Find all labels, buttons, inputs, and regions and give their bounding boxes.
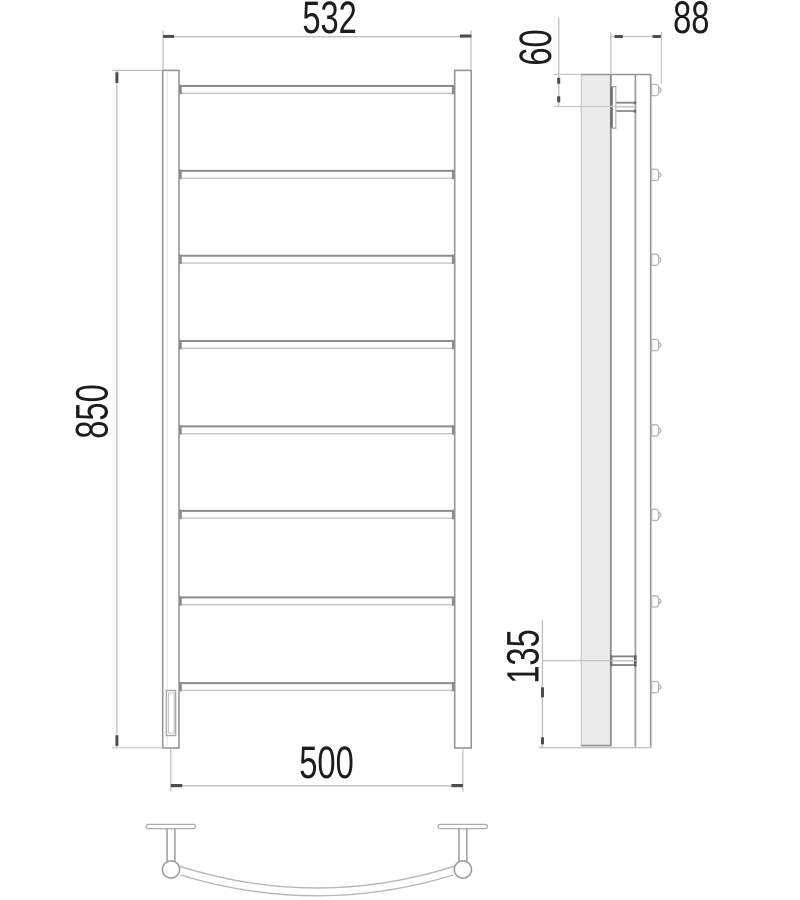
svg-text:532: 532 (302, 0, 356, 43)
svg-text:500: 500 (299, 738, 353, 788)
svg-text:60: 60 (511, 29, 561, 65)
svg-text:88: 88 (673, 0, 709, 43)
svg-text:850: 850 (67, 384, 117, 438)
svg-text:135: 135 (498, 629, 548, 683)
